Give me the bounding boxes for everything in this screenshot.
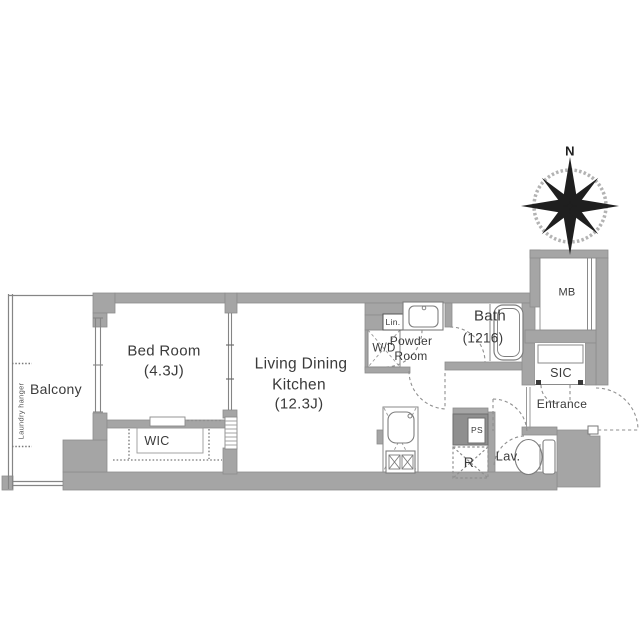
meter-box-label: MB bbox=[558, 288, 575, 299]
refrigerator-label: R bbox=[464, 455, 474, 469]
floorplan-canvas: Balcony Laundry hanger Bed Room (4.3J) L… bbox=[0, 0, 640, 640]
entrance-label: Entrance bbox=[537, 398, 587, 410]
sic-door-pivot-left bbox=[536, 380, 541, 385]
ldk-label-line1: Living Dining bbox=[255, 356, 348, 372]
sic-label: SIC bbox=[550, 367, 572, 380]
compass-north-label: N bbox=[565, 145, 575, 158]
wall-right-of-sic bbox=[585, 343, 596, 385]
wall-kitchen-stub bbox=[377, 430, 383, 444]
wall-bottom-right-block bbox=[557, 430, 600, 487]
bedroom-label: Bed Room bbox=[127, 344, 200, 359]
wall-lav-left bbox=[488, 412, 495, 480]
wall-balcony-corner bbox=[2, 476, 13, 490]
ldk-size-label: (12.3J) bbox=[275, 397, 324, 412]
wall-powder-bottom bbox=[365, 367, 410, 373]
wall-left-chunk bbox=[63, 440, 107, 472]
toilet bbox=[515, 440, 555, 475]
wall-bottom-main bbox=[63, 472, 557, 490]
wic-door-pocket bbox=[150, 417, 185, 426]
wall-lav-top bbox=[522, 427, 557, 435]
sic-door-pivot-right bbox=[578, 380, 583, 385]
powder-room-label-line2: Room bbox=[394, 350, 427, 362]
front-door-arc bbox=[596, 388, 638, 430]
bedroom-size-label: (4.3J) bbox=[144, 364, 184, 379]
bedroom-window bbox=[93, 318, 103, 412]
lav-label: Lav. bbox=[496, 450, 521, 463]
wall-mb-top bbox=[530, 250, 608, 258]
wall-bath-right bbox=[522, 303, 535, 385]
powder-door-arc bbox=[409, 371, 447, 409]
powder-basin bbox=[403, 302, 443, 330]
wall-below-window bbox=[93, 413, 107, 440]
wall-pillar-wic-bottom bbox=[223, 448, 237, 474]
wall-left-of-linen bbox=[365, 315, 383, 330]
pipe-space-label: PS bbox=[471, 426, 483, 435]
wall-powder-bath-divider bbox=[445, 303, 452, 327]
wall-pillar-topleft bbox=[93, 293, 115, 313]
kitchen bbox=[383, 407, 418, 473]
wall-top-ldk-bath bbox=[237, 293, 530, 303]
compass bbox=[521, 157, 619, 255]
kitchen-sink bbox=[388, 412, 414, 443]
powder-room-label-line1: Powder bbox=[390, 335, 433, 347]
floorplan-graphics bbox=[0, 0, 640, 640]
bath-label: Bath bbox=[474, 309, 506, 324]
wic-label: WIC bbox=[144, 435, 169, 448]
ldk-label-line2: Kitchen bbox=[272, 377, 326, 393]
wall-below-mb bbox=[525, 330, 596, 343]
linen-label: Lin. bbox=[386, 318, 401, 327]
bedroom-sliding-door bbox=[226, 313, 234, 410]
laundry-hanger-label: Laundry hanger bbox=[17, 383, 25, 440]
wall-above-linen bbox=[365, 303, 405, 315]
wall-mb-left bbox=[530, 250, 540, 307]
balcony-label: Balcony bbox=[30, 382, 82, 396]
compass-star bbox=[521, 157, 619, 255]
wall-bath-bottom bbox=[445, 362, 532, 370]
wall-right-outer bbox=[596, 258, 608, 385]
wall-top-bedroom bbox=[115, 293, 225, 303]
front-door-hinge bbox=[588, 426, 598, 434]
wall-above-ps bbox=[453, 408, 488, 414]
wall-pillar-bedroom-ldk bbox=[225, 293, 237, 313]
kitchen-stove bbox=[386, 451, 415, 473]
bath-size-label: (1216) bbox=[463, 331, 504, 345]
